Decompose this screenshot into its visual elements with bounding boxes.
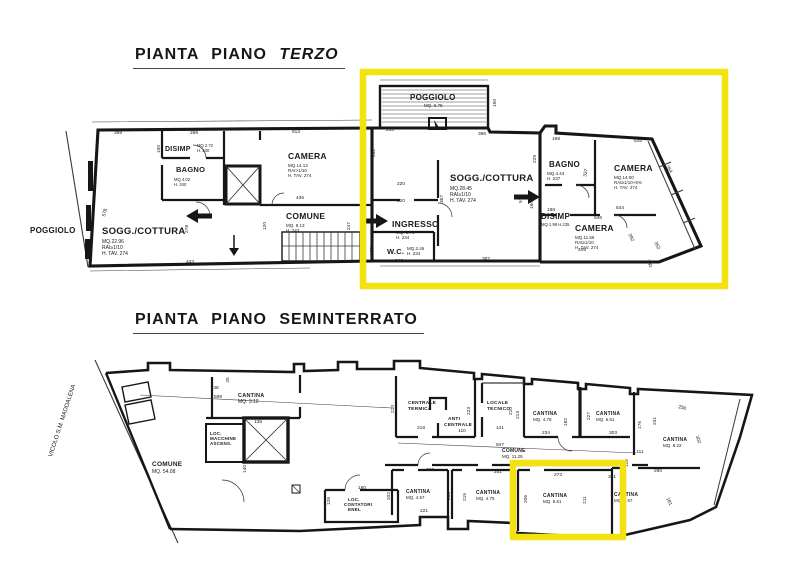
dimension-label: 436 [296,195,304,201]
dimension-label: 234 [542,430,550,436]
dimension-label: 110 [458,428,466,434]
street-name-label: VICOLO S.M. MADDALENA [48,384,77,458]
room-area-label: MQ. 6.51 [596,417,615,422]
room-label: CAMERA [575,223,614,233]
dimension-label: 575 [518,195,524,203]
room-area-label: H. 237 [547,176,561,181]
dimension-label: 516 [634,138,642,144]
dimension-label: 141 [496,425,504,431]
room-area-label: H. TAV. 274 [614,185,638,190]
room-label: TECNICO [487,406,510,412]
dimension-label: 215 [462,493,468,501]
dimension-label: 386 [478,131,486,137]
dimension-label: 247 [346,222,352,230]
dimension-label: 202 [386,492,392,500]
room-area-label: H. 240 [174,182,187,187]
room-area-label: MQ. 4.78 [533,417,552,422]
dimension-label: 220 [426,467,434,473]
room-label: ASCENS. [210,441,232,446]
dimension-label: 140 [242,465,248,473]
dimension-label: 443 [186,259,194,265]
dimension-label: 231 [652,417,658,425]
room-label: CAMERA [288,151,327,161]
dimension-label: 262 [371,149,377,157]
room-area-label: MQ. 54.08 [152,469,176,475]
dimension-label: 227 [586,412,592,420]
dimension-label: 337 [582,168,589,177]
dimension-label: 220 [397,198,405,204]
dimension-label: 198 [552,136,560,142]
dimension-label: 613 [292,129,300,135]
dimension-label: 578 [101,208,109,218]
room-label: ENEL [348,507,361,512]
dimension-label: 544 [616,205,624,211]
room-label: CENTRALE [444,422,473,428]
semi-wall-recesses [122,382,155,424]
dimension-label: 120 [262,222,268,230]
dimension-label: 211 [582,496,588,504]
semi-small-pillar [292,485,300,493]
dimension-label: 278 [184,225,190,233]
dimension-label: 210 [508,407,514,415]
dimension-label: 242 [395,258,403,264]
room-area-label: H. 234 [407,251,421,256]
terzo-elevator [226,166,260,204]
dimension-label: 546 [594,215,602,221]
dimension-label: 251 [494,469,502,475]
room-label: POGGIOLO [410,93,456,102]
dimension-label: 354 [664,164,674,174]
terzo-left-balcony [66,131,93,267]
room-label: DISIMP [541,212,570,221]
dimension-label: 150 [492,99,498,107]
plan-title-seminterrato-text: PIANTA PIANO SEMINTERRATO [135,311,418,328]
dimension-label: 176 [637,421,643,429]
dimension-label: 210 [446,492,452,500]
dimension-label: 303 [609,430,617,436]
room-label: SOGG./COTTURA [450,173,533,184]
room-area-label: MQ. 4.75 [476,496,495,501]
room-area-label: MQ. 5.51 [543,499,562,504]
dimension-label: 367 [439,195,445,203]
dimension-label: 280 [644,259,653,269]
dimension-label: 38 [213,385,219,391]
dimension-label: 947 [496,442,504,448]
room-label: LOCALE [487,400,509,406]
room-area-label: MQ. 4.57 [406,495,425,500]
semi-outer-walls [106,361,752,538]
dimension-label: 220 [397,181,405,187]
dimension-label: 100 [156,145,162,153]
dimension-label: 223 [466,407,472,415]
dimension-label: 273 [554,472,562,478]
room-label: COMUNE [286,211,325,221]
room-label: CAMERA [614,163,653,173]
terzo-diagonal-edge [648,141,695,249]
dimension-label: 160 [529,201,535,209]
room-area-label: H. TAV. 274 [102,251,128,257]
room-label: COMUNE [152,461,183,468]
room-label: TERMICA [408,406,432,412]
dimension-label: 206 [523,495,529,503]
dimension-label: 188 [547,207,555,213]
room-area-label: MQ. 6.75 [424,103,443,108]
dimension-label: 102 [369,247,375,255]
plan-title-seminterrato: PIANTA PIANO SEMINTERRATO [133,311,424,334]
entrance-arrow-left-unit [186,209,212,223]
dimension-label: 352 [652,241,661,251]
room-area-label: H. 240 [197,148,210,153]
dimension-label: 405 [578,247,586,253]
dimension-label: 182 [563,418,569,426]
plan-title-terzo-name: TERZO [279,46,338,63]
room-area-label: MQ. 8.22 [663,443,682,448]
room-area-label: H. 234 [396,235,410,240]
floor-plan-terzo: POGGIOLO SOGG./COTTURA MQ.22.96 RAI≥1/10… [0,65,800,303]
dimension-label: 126 [326,497,332,505]
dimension-label: 392 [626,233,635,243]
dimension-label: 302 [694,435,702,445]
room-label: POGGIOLO [30,226,76,235]
dimension-label: 171 [375,215,381,223]
room-label: SOGG./COTTURA [102,226,185,237]
dimension-label: 369 [114,130,122,136]
plan-title-terzo-prefix: PIANTA PIANO [135,46,267,63]
room-label: BAGNO [549,160,580,169]
room-area-label: H. 243 [286,228,300,233]
dimension-label: 180 [358,485,366,491]
dimension-label: 387 [482,256,490,262]
room-label: INGRESSO [392,219,439,229]
dimension-label: 229 [532,155,538,163]
room-area-label: H. TAV. 274 [288,173,312,178]
terzo-staircase [229,232,360,261]
room-area-label: H. TAV. 274 [450,198,476,204]
dimension-label: 210 [390,405,396,413]
room-area-label: MQ. 3.10 [238,399,259,405]
room-label: ANTI [448,416,461,422]
dimension-label: 599 [214,394,222,400]
room-label: BAGNO [176,165,205,174]
floor-plan-seminterrato: COMUNE MQ. 54.08 CANTINA MQ. 3.10 LOC. M… [0,335,800,565]
semi-elevator [244,418,288,462]
room-area-label: MQ.1.98 H.235 [541,222,570,227]
room-area-label: MQ. 11.25 [502,454,523,459]
entrance-arrow-right-unit [514,190,540,204]
dimension-label: 181 [664,497,673,507]
dimension-label: 269 [190,130,198,136]
dimension-label: 221 [420,508,428,514]
dimension-label: 250 [678,404,688,412]
dimension-label: 25 [225,377,231,383]
dimension-label: 111 [636,449,644,455]
dimension-label: 290 [654,468,662,474]
room-label: W.C. [387,247,404,256]
dimension-label: 218 [386,127,394,133]
semi-left-wall [106,373,170,529]
room-label: CENTRALE [408,400,437,406]
room-label: DISIMP [165,146,191,153]
dimension-label: 213 [515,411,521,419]
floor-plan-sheet: { "colors": {"highlight": "#F2E20D", "in… [0,0,800,565]
highlight-box-seminterrato [513,463,623,537]
dimension-label: 218 [417,425,425,431]
dimension-label: 135 [254,419,262,425]
dimension-label: 371 [608,474,616,480]
